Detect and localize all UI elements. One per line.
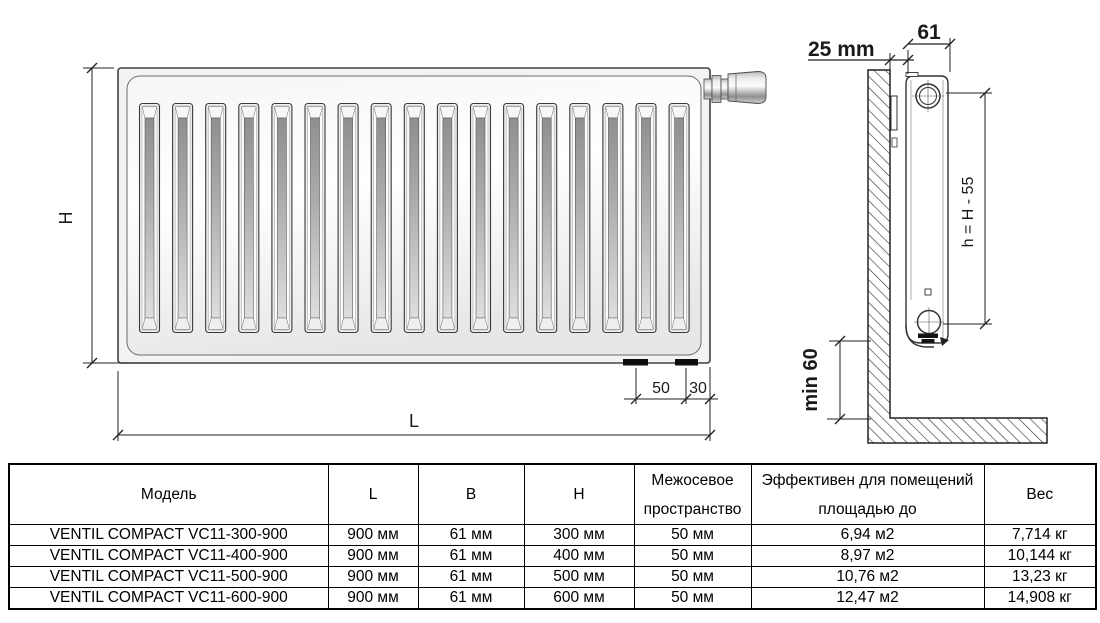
radiator-datasheet-page: H L 50 30 <box>0 0 1100 623</box>
cell-weight: 14,908 кг <box>984 588 1096 610</box>
col-header-model: Модель <box>9 464 328 525</box>
cell-model: VENTIL COMPACT VC11-600-900 <box>9 588 328 610</box>
cell-h: 500 мм <box>524 567 634 588</box>
cell-effective-area: 12,47 м2 <box>751 588 984 610</box>
thermostatic-valve <box>704 72 766 104</box>
side-view-dimensions: 25 mm 61 h = H - 55 min 60 <box>800 21 992 424</box>
col-header-b: B <box>418 464 524 525</box>
cell-b: 61 мм <box>418 546 524 567</box>
dim-axis-height-label: h = H - 55 <box>960 177 977 248</box>
cell-b: 61 мм <box>418 525 524 546</box>
radiator-technical-drawing: H L 50 30 <box>0 0 1100 460</box>
dim-floor-clearance-label: min 60 <box>800 348 822 411</box>
cell-weight: 7,714 кг <box>984 525 1096 546</box>
wall-bracket <box>891 96 897 130</box>
table-row: VENTIL COMPACT VC11-500-900 900 мм 61 мм… <box>9 567 1096 588</box>
cell-axis-spacing: 50 мм <box>634 546 751 567</box>
cell-l: 900 мм <box>328 546 418 567</box>
spec-table-header: Модель L B H Межосевое пространство Эффе… <box>9 464 1096 525</box>
cell-l: 900 мм <box>328 567 418 588</box>
cell-h: 400 мм <box>524 546 634 567</box>
table-row: VENTIL COMPACT VC11-400-900 900 мм 61 мм… <box>9 546 1096 567</box>
col-header-axis-spacing: Межосевое пространство <box>634 464 751 525</box>
cell-b: 61 мм <box>418 567 524 588</box>
cell-weight: 13,23 кг <box>984 567 1096 588</box>
cell-h: 600 мм <box>524 588 634 610</box>
cell-weight: 10,144 кг <box>984 546 1096 567</box>
side-view <box>868 70 1047 443</box>
dim-wall-offset-label: 25 mm <box>808 38 875 61</box>
cell-axis-spacing: 50 мм <box>634 525 751 546</box>
dim-length-label: L <box>409 411 419 431</box>
dim-50-label: 50 <box>652 380 670 397</box>
spec-table: Модель L B H Межосевое пространство Эффе… <box>8 463 1097 610</box>
col-header-h: H <box>524 464 634 525</box>
cell-model: VENTIL COMPACT VC11-400-900 <box>9 546 328 567</box>
cell-axis-spacing: 50 мм <box>634 588 751 610</box>
header-row: Модель L B H Межосевое пространство Эффе… <box>9 464 1096 525</box>
spec-table-body: VENTIL COMPACT VC11-300-900 900 мм 61 мм… <box>9 525 1096 610</box>
col-header-weight: Вес <box>984 464 1096 525</box>
col-header-l: L <box>328 464 418 525</box>
front-view <box>118 68 766 366</box>
cell-b: 61 мм <box>418 588 524 610</box>
radiator-grooves <box>140 104 690 333</box>
cell-axis-spacing: 50 мм <box>634 567 751 588</box>
dim-30-label: 30 <box>689 380 707 397</box>
cell-effective-area: 8,97 м2 <box>751 546 984 567</box>
bottom-connection-right <box>675 359 698 366</box>
bottom-connection-left <box>623 359 648 366</box>
wall-bracket-clip <box>892 138 897 147</box>
dim-height-label: H <box>56 212 76 225</box>
cell-h: 300 мм <box>524 525 634 546</box>
cell-effective-area: 6,94 м2 <box>751 525 984 546</box>
cell-model: VENTIL COMPACT VC11-500-900 <box>9 567 328 588</box>
cell-effective-area: 10,76 м2 <box>751 567 984 588</box>
radiator-side-panel <box>906 76 948 343</box>
cell-model: VENTIL COMPACT VC11-300-900 <box>9 525 328 546</box>
table-row: VENTIL COMPACT VC11-600-900 900 мм 61 мм… <box>9 588 1096 610</box>
table-row: VENTIL COMPACT VC11-300-900 900 мм 61 мм… <box>9 525 1096 546</box>
dim-depth-label: 61 <box>917 21 941 44</box>
cell-l: 900 мм <box>328 588 418 610</box>
col-header-effective-area: Эффективен для помещений площадью до <box>751 464 984 525</box>
cell-l: 900 мм <box>328 525 418 546</box>
